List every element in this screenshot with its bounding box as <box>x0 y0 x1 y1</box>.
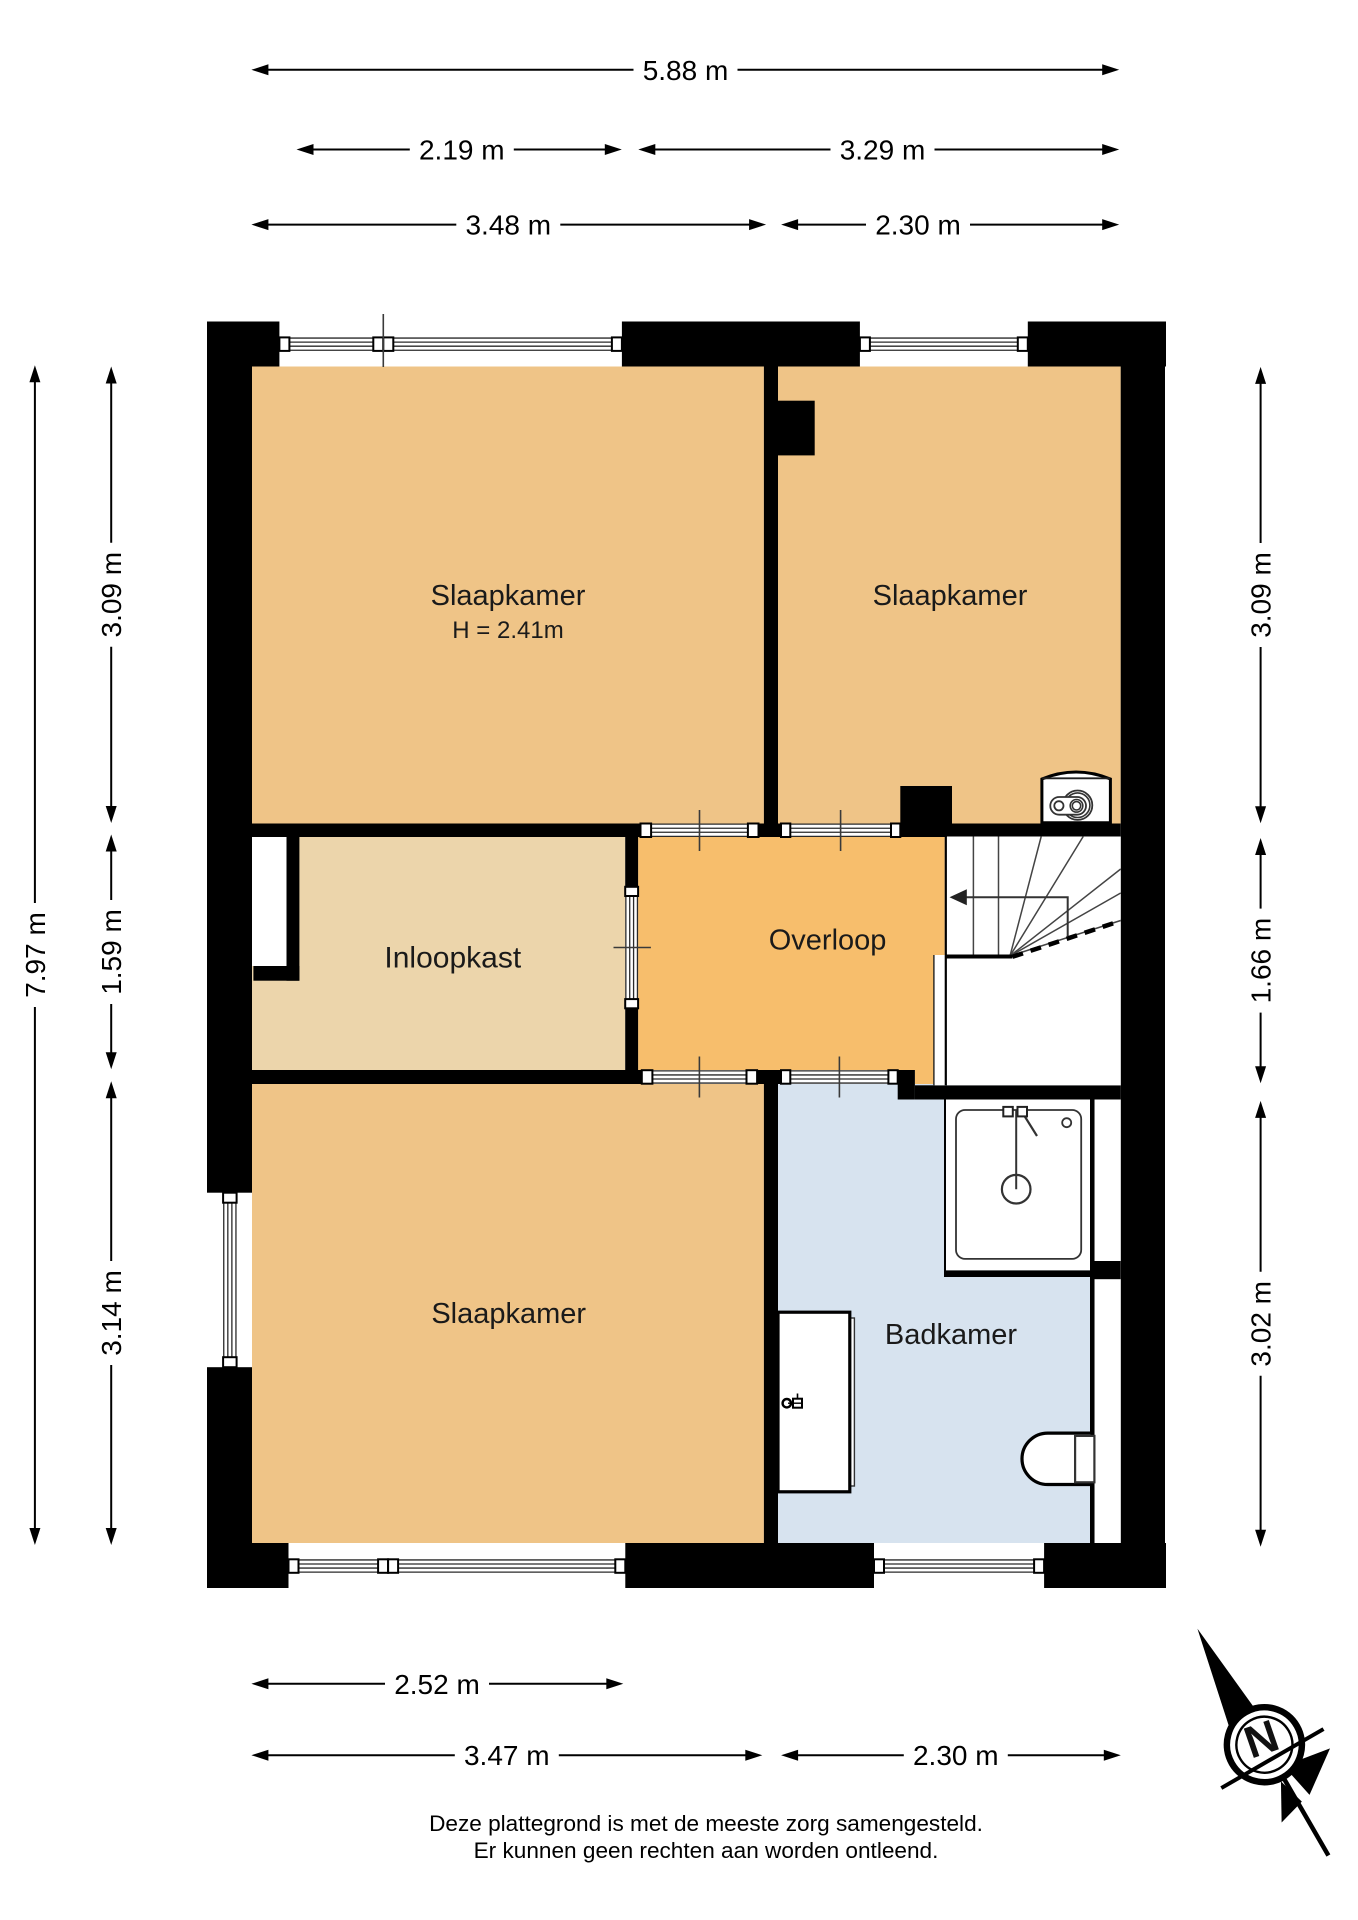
svg-text:1.59 m: 1.59 m <box>96 909 127 995</box>
svg-text:1.66 m: 1.66 m <box>1246 918 1277 1004</box>
svg-text:3.14 m: 3.14 m <box>96 1270 127 1356</box>
svg-text:3.09 m: 3.09 m <box>96 552 127 638</box>
svg-text:Slaapkamer: Slaapkamer <box>431 580 586 612</box>
svg-text:Inloopkast: Inloopkast <box>384 942 521 975</box>
svg-text:3.02 m: 3.02 m <box>1246 1281 1277 1367</box>
svg-text:Slaapkamer: Slaapkamer <box>431 1298 586 1330</box>
svg-text:Badkamer: Badkamer <box>885 1319 1018 1351</box>
svg-text:3.47 m: 3.47 m <box>464 1740 550 1771</box>
svg-text:Overloop: Overloop <box>769 925 887 957</box>
svg-text:Slaapkamer: Slaapkamer <box>873 580 1028 612</box>
svg-text:H = 2.41m: H = 2.41m <box>452 617 563 644</box>
svg-text:Deze plattegrond is met de mee: Deze plattegrond is met de meeste zorg s… <box>429 1811 983 1836</box>
svg-text:7.97 m: 7.97 m <box>20 912 51 998</box>
svg-text:2.19 m: 2.19 m <box>419 135 505 166</box>
svg-text:Er kunnen geen rechten aan wor: Er kunnen geen rechten aan worden ontlee… <box>474 1838 939 1863</box>
svg-text:5.88 m: 5.88 m <box>643 55 729 86</box>
svg-text:2.52 m: 2.52 m <box>394 1669 480 1700</box>
svg-text:3.09 m: 3.09 m <box>1246 552 1277 638</box>
svg-text:2.30 m: 2.30 m <box>875 210 961 241</box>
svg-text:2.30 m: 2.30 m <box>913 1740 999 1771</box>
svg-text:3.29 m: 3.29 m <box>840 135 926 166</box>
svg-text:3.48 m: 3.48 m <box>465 210 551 241</box>
